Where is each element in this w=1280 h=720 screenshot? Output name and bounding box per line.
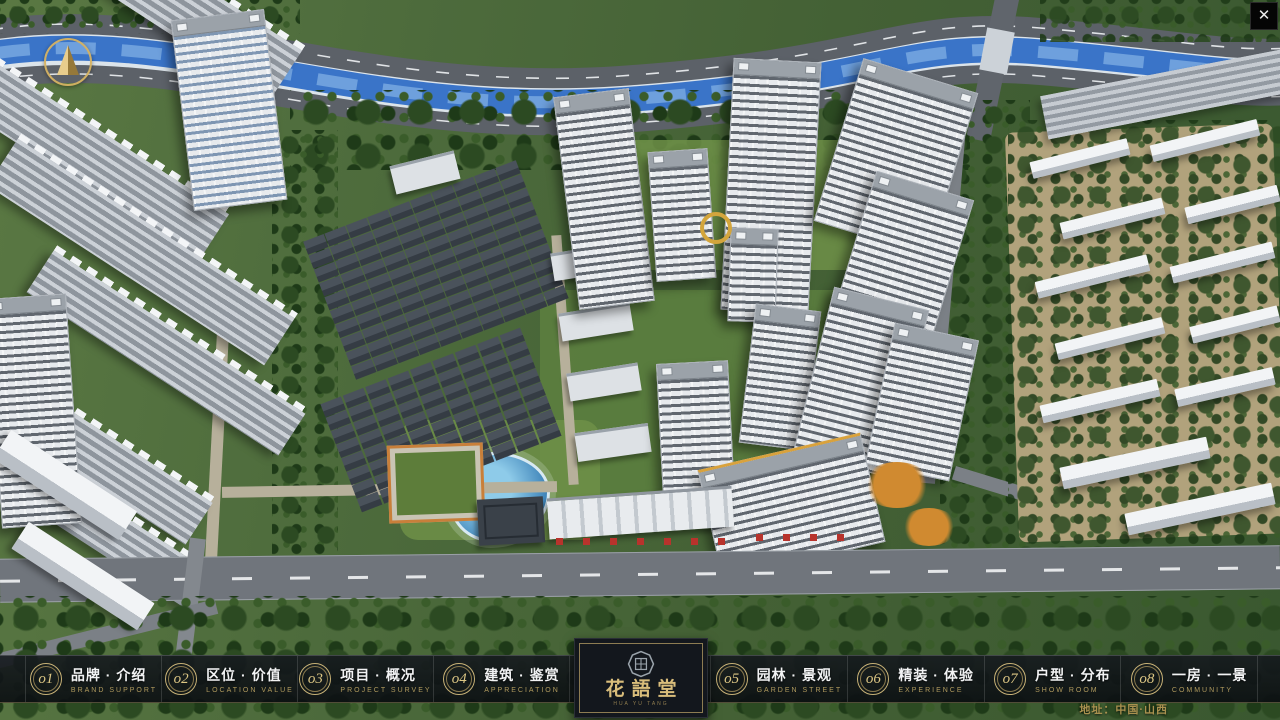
nav-sublabel: PROJECT SURVEY <box>340 687 431 694</box>
nav-item-location[interactable]: o2 区位 · 价值 LOCATION VALUE <box>161 656 297 702</box>
nav-label: 户型 · 分布 <box>1035 665 1110 685</box>
number-badge-icon: o4 <box>443 663 475 695</box>
number-badge-icon: o3 <box>299 663 331 695</box>
compass-icon <box>44 38 92 86</box>
gold-landscape-ring <box>700 212 732 244</box>
nav-label: 一房 · 一景 <box>1172 665 1247 685</box>
nav-label: 区位 · 价值 <box>206 665 281 685</box>
number-badge-icon: o5 <box>716 663 748 695</box>
brand-logo-subtitle: HUA YU TANG <box>613 701 668 707</box>
seal-emblem-icon <box>627 650 655 678</box>
nav-sublabel: SHOW ROOM <box>1035 687 1099 694</box>
nav-item-view[interactable]: o8 一房 · 一景 COMMUNITY <box>1120 656 1258 702</box>
number-badge-icon: o8 <box>1131 663 1163 695</box>
nav-label: 品牌 · 介绍 <box>71 665 146 685</box>
number-badge-icon: o2 <box>165 663 197 695</box>
nav-sublabel: APPRECIATION <box>484 687 560 694</box>
logo-panel[interactable]: 花語堂 HUA YU TANG <box>574 638 708 718</box>
chinese-gate <box>477 496 545 545</box>
project-address: 地址：中国·山西 <box>1079 701 1168 717</box>
nav-sublabel: GARDEN STREET <box>757 687 843 694</box>
nav-item-garden[interactable]: o5 园林 · 景观 GARDEN STREET <box>710 656 847 702</box>
masterplan-3d-view[interactable] <box>0 0 1280 720</box>
nav-sublabel: COMMUNITY <box>1172 687 1233 694</box>
nav-item-brand[interactable]: o1 品牌 · 介绍 BRAND SUPPORT <box>25 656 161 702</box>
brand-logo-text: 花語堂 <box>598 680 683 699</box>
nav-item-floorplan[interactable]: o7 户型 · 分布 SHOW ROOM <box>984 656 1121 702</box>
clubhouse-building <box>387 442 486 523</box>
close-button[interactable]: ✕ <box>1250 2 1278 30</box>
nav-item-interior[interactable]: o6 精装 · 体验 EXPERIENCE <box>847 656 984 702</box>
nav-sublabel: EXPERIENCE <box>898 687 963 694</box>
nav-label: 园林 · 景观 <box>757 665 832 685</box>
nav-label: 项目 · 概况 <box>340 665 415 685</box>
nav-label: 精装 · 体验 <box>898 665 973 685</box>
number-badge-icon: o7 <box>994 663 1026 695</box>
number-badge-icon: o6 <box>857 663 889 695</box>
nav-item-project[interactable]: o3 项目 · 概况 PROJECT SURVEY <box>297 656 433 702</box>
nav-group-left: o1 品牌 · 介绍 BRAND SUPPORT o2 区位 · 价值 LOCA… <box>25 656 570 702</box>
nav-item-architecture[interactable]: o4 建筑 · 鉴赏 APPRECIATION <box>433 656 570 702</box>
nav-label: 建筑 · 鉴赏 <box>484 665 559 685</box>
parked-cars <box>556 538 736 545</box>
nav-group-right: o5 园林 · 景观 GARDEN STREET o6 精装 · 体验 EXPE… <box>710 656 1258 702</box>
number-badge-icon: o1 <box>30 663 62 695</box>
nav-sublabel: LOCATION VALUE <box>206 687 294 694</box>
autumn-trees <box>900 508 958 546</box>
parked-cars <box>756 534 846 541</box>
presentation-window: ✕ o1 品牌 · 介绍 BRAND SUPPORT o2 区位 · 价值 LO… <box>0 0 1280 720</box>
autumn-trees <box>862 462 932 508</box>
nav-sublabel: BRAND SUPPORT <box>71 687 157 694</box>
